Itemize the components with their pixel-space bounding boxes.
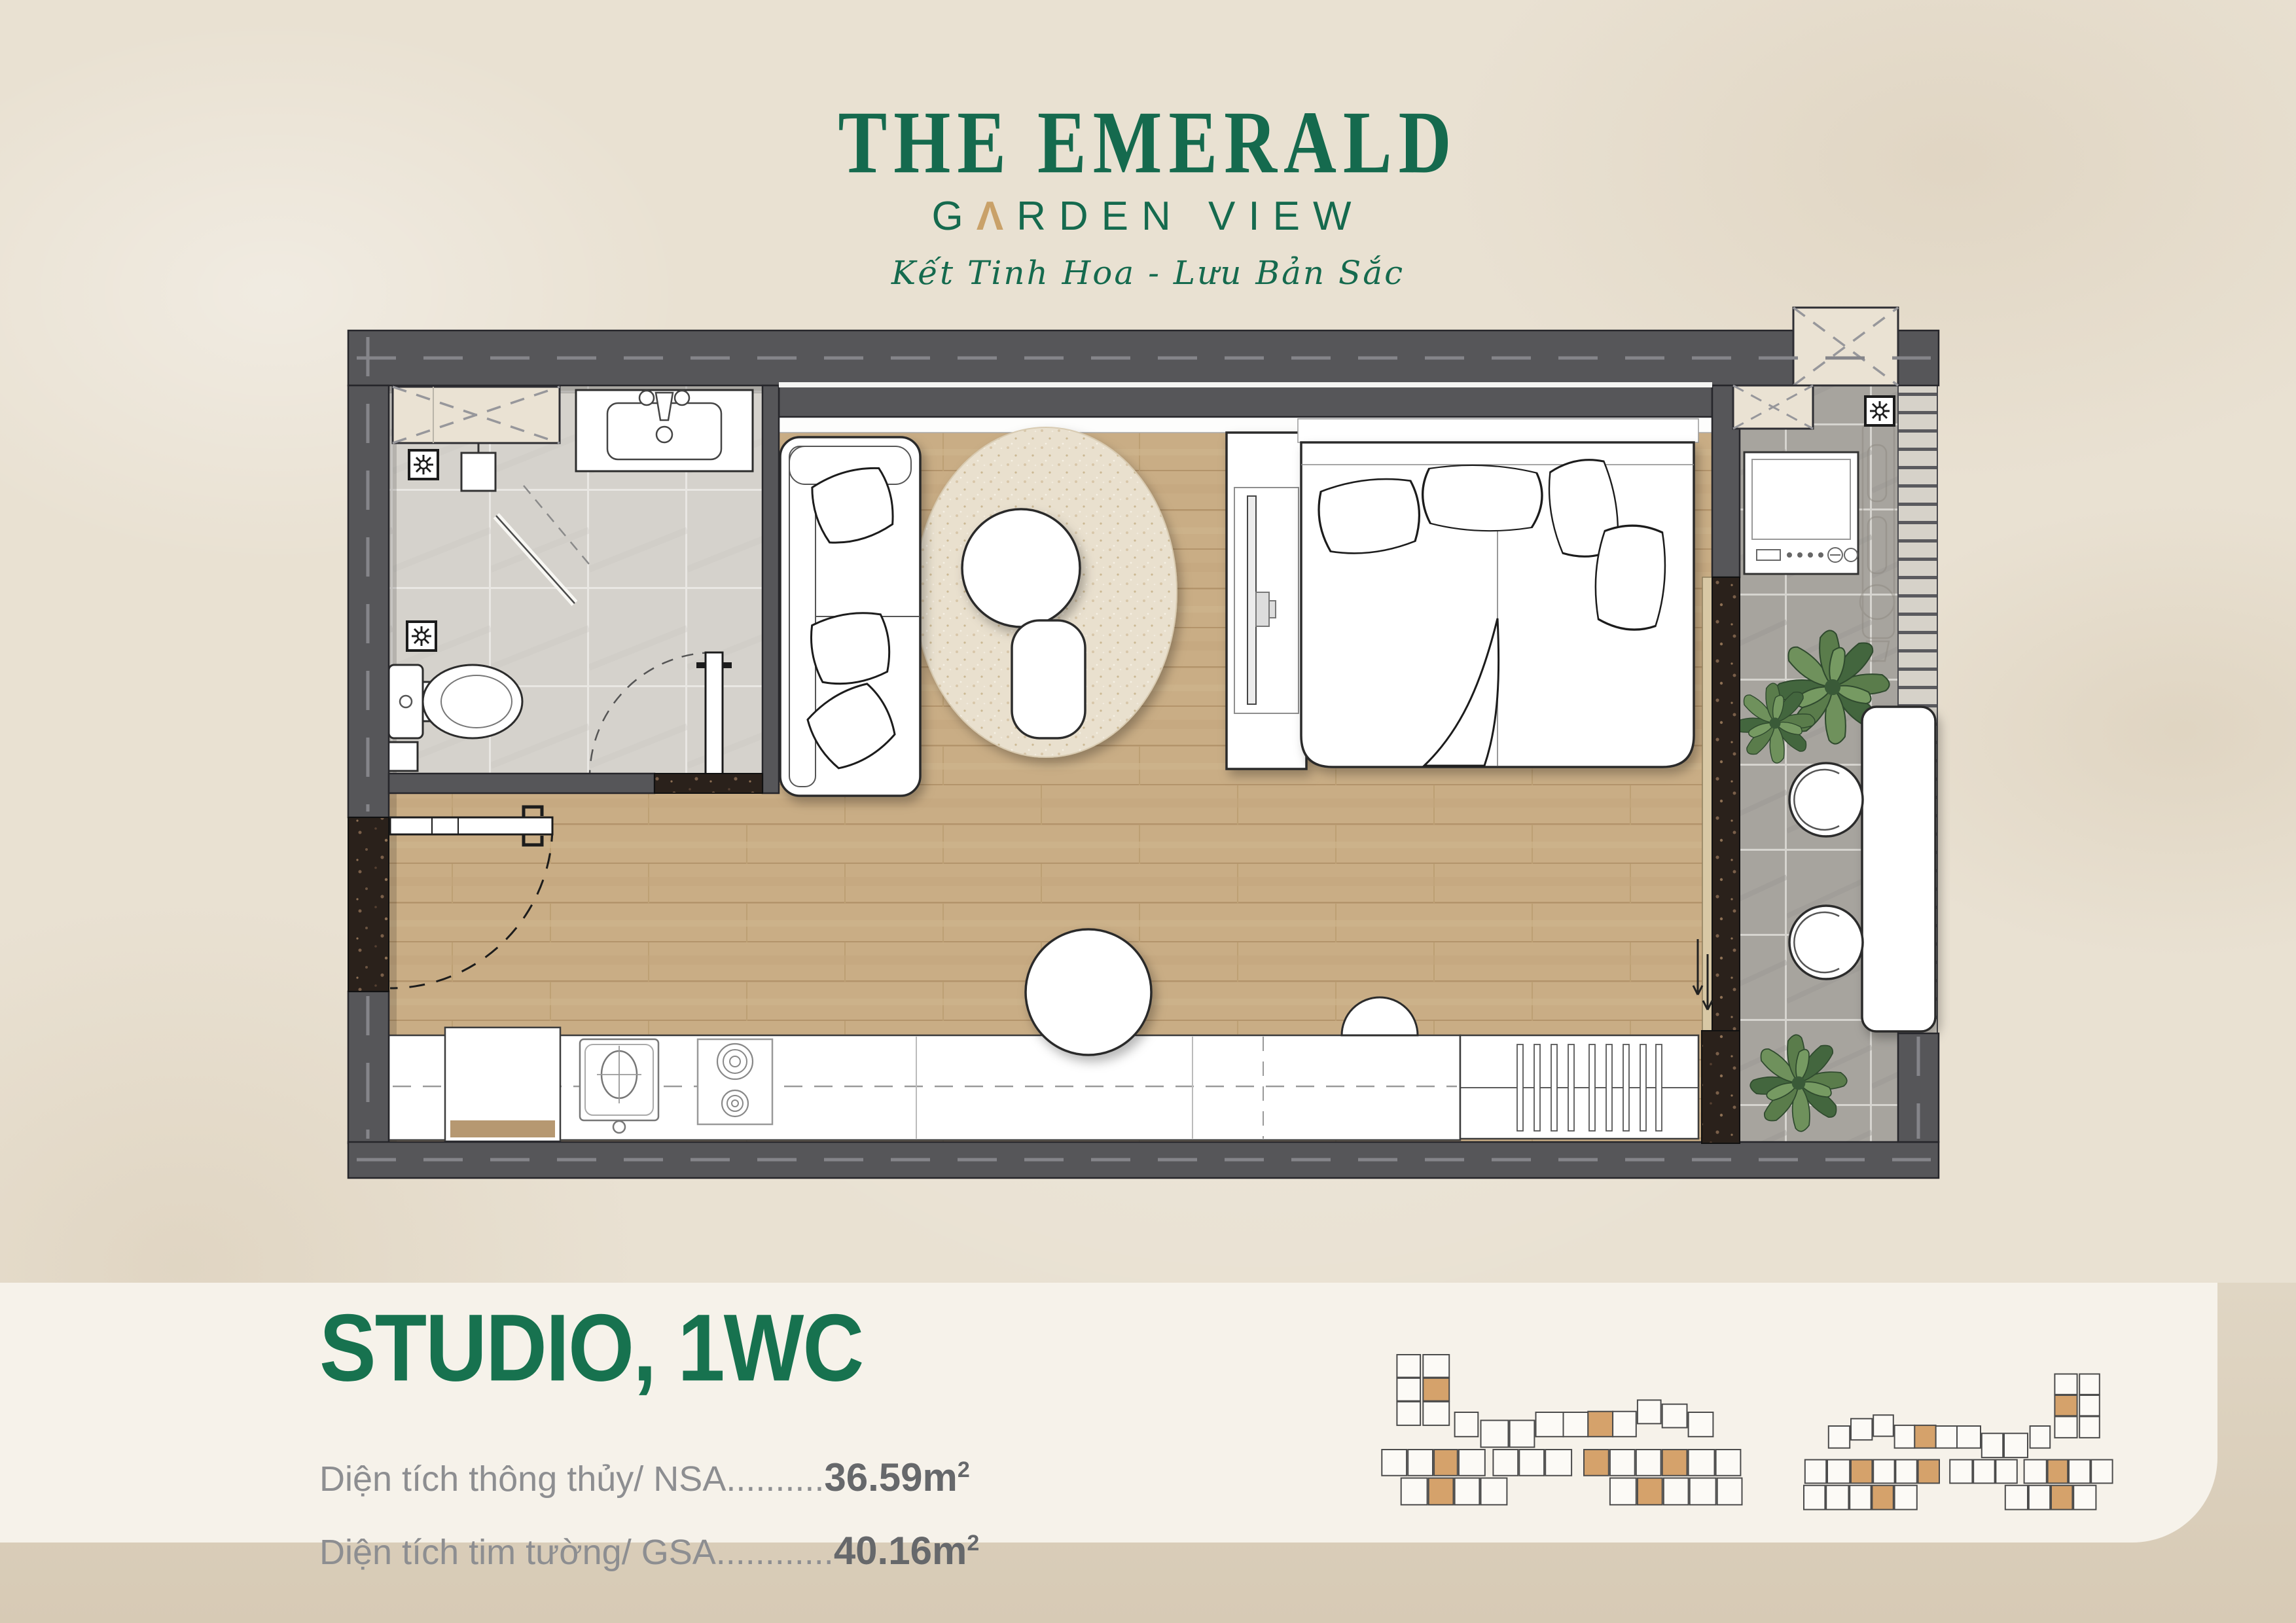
floorplan (327, 281, 1990, 1211)
siteplan-unit-cell (1914, 1425, 1935, 1448)
coffee-table-oval (1012, 620, 1085, 738)
siteplan-unit-cell (2069, 1460, 2090, 1484)
siteplan-unit-cell (1826, 1486, 1848, 1510)
siteplan-unit-cell (2054, 1395, 2077, 1416)
wall-bathroom-south (389, 774, 655, 793)
brand-title: THE EMERALD (0, 92, 2296, 194)
siteplan-unit-cell (1895, 1460, 1916, 1484)
cooktop (698, 1039, 772, 1124)
siteplan-unit-cell (1423, 1402, 1449, 1425)
area-value: 40.16m2 (834, 1529, 979, 1573)
plant-icon (1750, 1035, 1847, 1132)
floor-drain-icon (407, 622, 436, 651)
bed (1301, 442, 1694, 767)
siteplan-unit-cell (1690, 1478, 1716, 1505)
sofa (780, 437, 920, 796)
kitchen-sink (580, 1039, 658, 1133)
siteplan-unit-cell (1545, 1450, 1571, 1476)
balcony-slider-threshold (1712, 577, 1740, 1031)
headboard-shelf (1298, 419, 1698, 442)
siteplan-unit-cell (1510, 1420, 1535, 1447)
balcony-stool (1789, 906, 1863, 979)
siteplan-cluster-left (1382, 1355, 1742, 1505)
siteplan-unit-cell (2030, 1426, 2051, 1448)
balcony-appliance (1744, 452, 1858, 574)
siteplan-unit-cell (1804, 1486, 1825, 1510)
siteplan-unit-cell (1610, 1478, 1636, 1505)
window-glazing-line (779, 382, 1712, 387)
brand-subtitle-post: RDEN VIEW (1016, 194, 1364, 239)
coffee-table-round (962, 509, 1080, 627)
bed-pillow (1592, 522, 1670, 632)
bed-pillow (1421, 462, 1543, 533)
siteplan-unit-cell (1689, 1450, 1715, 1476)
siteplan-unit-cell (1689, 1412, 1713, 1436)
area-row-gsa: Diện tích tim tường/ GSA............40.1… (319, 1511, 979, 1584)
siteplan-unit-cell (2054, 1416, 2077, 1437)
balcony-corner-granite (1702, 1031, 1740, 1143)
brand-logo: THE EMERALD GΛRDEN VIEW Kết Tinh Hoa - L… (0, 92, 2296, 292)
siteplan-unit-cell (1423, 1355, 1449, 1378)
siteplan-unit-cell (1829, 1426, 1850, 1448)
dots-leader: .......... (726, 1459, 824, 1499)
siteplan-unit-cell (1481, 1420, 1509, 1447)
toilet (389, 665, 522, 738)
bathroom-threshold (655, 774, 762, 793)
siteplan-unit-cell (1434, 1450, 1458, 1476)
siteplan-unit-cell (1895, 1425, 1915, 1448)
dots-leader: ............ (716, 1533, 834, 1572)
siteplan-unit-cell (1536, 1412, 1564, 1436)
shaft-top-right (1793, 308, 1898, 385)
siteplan-unit-cell (1429, 1478, 1454, 1505)
siteplan-unit-cell (1613, 1412, 1636, 1436)
siteplan-unit-cell (2079, 1416, 2100, 1437)
siteplan-unit-cell (1662, 1404, 1687, 1428)
plant-icon (1735, 683, 1815, 763)
siteplan-unit-cell (2048, 1460, 2068, 1484)
floor-drain-icon (409, 450, 438, 479)
tv-console (1227, 433, 1306, 769)
siteplan-unit-cell (1918, 1460, 1939, 1484)
area-label: Diện tích tim tường/ GSA (319, 1533, 716, 1572)
wall-bathroom-east (762, 385, 779, 793)
siteplan-unit-cell (1873, 1415, 1893, 1436)
siteplan-unit-cell (1481, 1478, 1507, 1505)
siteplan-unit-cell (1996, 1460, 2017, 1484)
siteplan-unit-cell (2079, 1395, 2100, 1416)
bedroom-area (1298, 419, 1698, 767)
siteplan-unit-cell (1408, 1450, 1433, 1476)
siteplan-unit-cell (1638, 1478, 1662, 1505)
siteplan-unit-cell (1805, 1460, 1826, 1484)
siteplan-unit-cell (1872, 1486, 1893, 1510)
siteplan-unit-cell (1662, 1450, 1687, 1476)
siteplan-unit-cell (2079, 1374, 2100, 1394)
siteplan-unit-cell (1455, 1412, 1479, 1436)
siteplan-unit-cell (1895, 1486, 1917, 1510)
siteplan-unit-cell (1459, 1450, 1485, 1476)
siteplan-unit-cell (1588, 1412, 1613, 1436)
tv-icon (1247, 496, 1256, 704)
siteplan-key (1361, 1345, 2232, 1567)
siteplan-unit-cell (1397, 1355, 1420, 1378)
unit-info: STUDIO, 1WC Diện tích thông thủy/ NSA...… (319, 1293, 979, 1584)
brand-subtitle-pre: G (932, 194, 977, 239)
bed-pillow (1316, 475, 1423, 558)
siteplan-unit-cell (1950, 1460, 1972, 1484)
area-value: 36.59m2 (824, 1455, 969, 1499)
siteplan-unit-cell (2054, 1374, 2077, 1394)
living-area (780, 427, 1306, 796)
siteplan-unit-cell (2024, 1460, 2047, 1484)
sink-faucet-icon (613, 1121, 625, 1133)
siteplan-unit-cell (2051, 1486, 2072, 1510)
floor-drain-icon (1865, 397, 1894, 425)
unit-title: STUDIO, 1WC (319, 1293, 979, 1402)
siteplan-unit-cell (1936, 1426, 1957, 1448)
siteplan-unit-cell (1519, 1450, 1544, 1476)
slatted-cabinet (1460, 1035, 1698, 1139)
siteplan-unit-cell (1584, 1450, 1609, 1476)
siteplan-unit-cell (1636, 1450, 1661, 1476)
balcony-table (1862, 707, 1935, 1031)
brand-subtitle: GΛRDEN VIEW (0, 193, 2296, 240)
area-label: Diện tích thông thủy/ NSA (319, 1459, 726, 1499)
toilet-paper-holder (385, 742, 418, 771)
siteplan-unit-cell (1397, 1378, 1420, 1401)
siteplan-unit-cell (2029, 1486, 2050, 1510)
vanity-sink (576, 390, 753, 471)
siteplan-unit-cell (1717, 1478, 1742, 1505)
siteplan-unit-cell (1982, 1433, 2003, 1457)
shaft-bathroom (393, 387, 560, 443)
siteplan-unit-cell (1455, 1478, 1480, 1505)
balcony-stool (1789, 763, 1863, 836)
area-row-nsa: Diện tích thông thủy/ NSA..........36.59… (319, 1438, 979, 1511)
entry-threshold (348, 817, 389, 991)
siteplan-unit-cell (2004, 1433, 2028, 1457)
siteplan-unit-cell (1397, 1402, 1420, 1425)
siteplan-unit-cell (1973, 1460, 1994, 1484)
siteplan-unit-cell (1610, 1450, 1635, 1476)
dining-table (1026, 929, 1151, 1055)
siteplan-unit-cell (1382, 1450, 1407, 1476)
siteplan-unit-cell (1850, 1486, 1871, 1510)
siteplan-unit-cell (1664, 1478, 1689, 1505)
siteplan-unit-cell (1638, 1400, 1661, 1423)
siteplan-unit-cell (1827, 1460, 1850, 1484)
siteplan-unit-cell (1851, 1419, 1872, 1440)
wall-top-inner (779, 385, 1712, 417)
siteplan-unit-cell (1873, 1460, 1894, 1484)
siteplan-unit-cell (1957, 1426, 1981, 1448)
siteplan-unit-cell (1564, 1412, 1588, 1436)
siteplan-unit-cell (1423, 1378, 1449, 1401)
fridge-space (445, 1027, 560, 1141)
area-table: Diện tích thông thủy/ NSA..........36.59… (319, 1438, 979, 1584)
siteplan-unit-cell (2005, 1486, 2028, 1510)
siteplan-cluster-right (1804, 1374, 2113, 1509)
siteplan-unit-cell (2073, 1486, 2096, 1510)
siteplan-unit-cell (1851, 1460, 1872, 1484)
siteplan-unit-cell (1401, 1478, 1427, 1505)
siteplan-unit-cell (2091, 1460, 2112, 1484)
siteplan-unit-cell (1493, 1450, 1518, 1476)
shaft-balcony (1733, 385, 1813, 429)
siteplan-unit-cell (1716, 1450, 1741, 1476)
brand-gold-a-icon: Λ (977, 194, 1016, 239)
